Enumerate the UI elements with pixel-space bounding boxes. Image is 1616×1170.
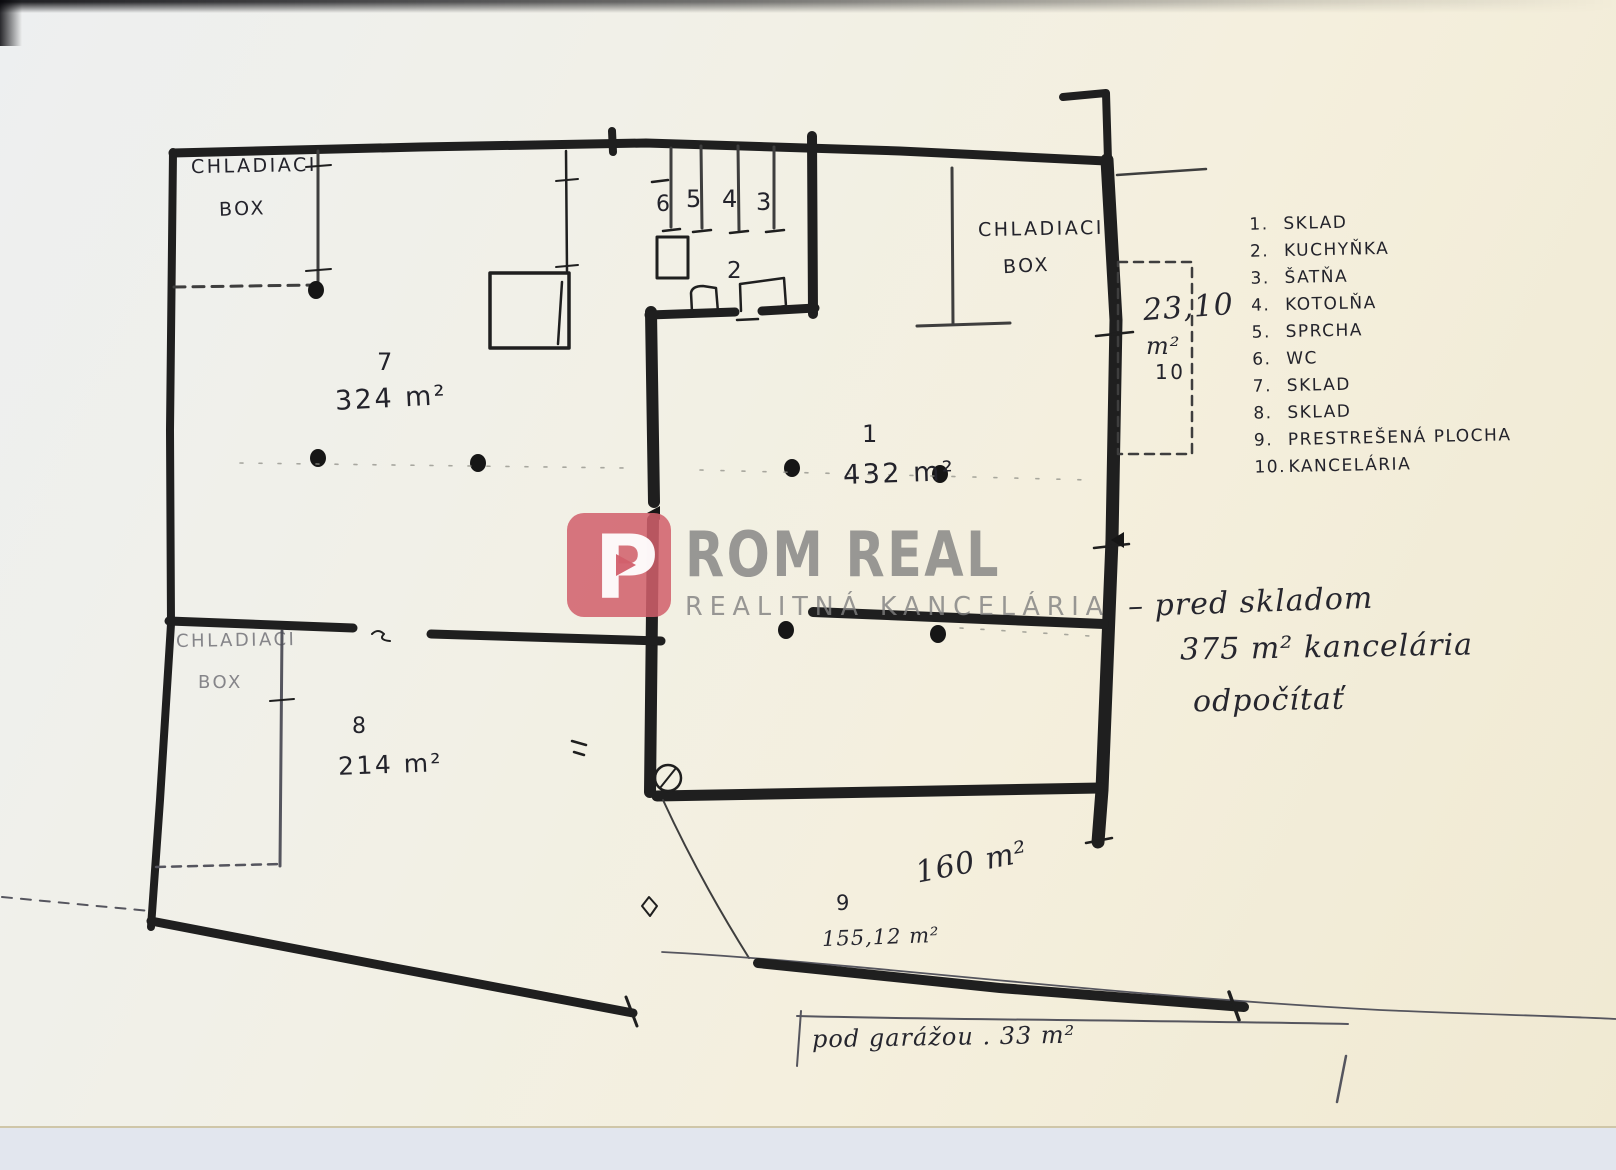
coldbox-tl-label-2: BOX bbox=[219, 197, 267, 221]
room10-unit: m² bbox=[1146, 332, 1180, 360]
coldbox-tl-tick-b bbox=[306, 269, 331, 271]
room1-area: 432 m² bbox=[842, 456, 955, 491]
small-box bbox=[657, 237, 688, 278]
coldbox-tl-label-1: CHLADIACI bbox=[191, 154, 317, 178]
column-dot bbox=[308, 281, 324, 299]
pencil-guide-1 bbox=[240, 463, 625, 468]
stall6-number: 6 bbox=[656, 192, 673, 217]
side-note-line3: odpočítať bbox=[1193, 682, 1346, 720]
wall-interior-left-a bbox=[169, 621, 353, 628]
pencil-guide-3 bbox=[960, 628, 1090, 636]
legend-num: 8. bbox=[1253, 403, 1287, 424]
coldbox-tl-bottom-dashed bbox=[174, 285, 318, 287]
stall-tick-4 bbox=[766, 230, 784, 232]
legend-row: 9.PRESTREŠENÁ PLOCHA bbox=[1254, 425, 1512, 450]
wall-top-stub bbox=[612, 131, 613, 152]
photo-top-edge bbox=[0, 0, 1616, 13]
legend-num: 3. bbox=[1250, 268, 1284, 289]
room8-area: 214 m² bbox=[338, 748, 444, 781]
legend-label: SPRCHA bbox=[1285, 320, 1363, 342]
wall-top-right-bracket bbox=[1063, 93, 1108, 160]
wall-center-upper bbox=[651, 312, 654, 502]
room8-number: 8 bbox=[352, 714, 369, 739]
small-scribble bbox=[572, 741, 586, 755]
photo-bottom-backdrop bbox=[0, 1126, 1616, 1170]
room-legend: 1.SKLAD 2.KUCHYŇKA 3.ŠATŇA 4.KOTOLŇA 5.S… bbox=[1249, 209, 1512, 484]
stall-tick-2 bbox=[693, 230, 711, 232]
fixture-rect-mark bbox=[558, 282, 562, 344]
fixture-rect bbox=[490, 273, 569, 348]
legend-num: 10. bbox=[1254, 457, 1288, 478]
wall-stalls-right bbox=[812, 136, 813, 314]
room10-number: 10 bbox=[1155, 360, 1185, 384]
legend-label: KANCELÁRIA bbox=[1288, 454, 1411, 477]
room7-area: 324 m² bbox=[334, 380, 448, 417]
coldbox-bl-border bbox=[280, 631, 282, 866]
legend-label: WC bbox=[1286, 348, 1318, 369]
coldbox-bl-label-1: CHLADIACI bbox=[176, 629, 297, 652]
side-note-line2: 375 m² kancelária bbox=[1180, 627, 1474, 667]
column-dot bbox=[778, 621, 794, 639]
dimension-line bbox=[566, 151, 567, 271]
watermark-text: ROM REAL REALITNÁ KANCELÁRIA bbox=[685, 512, 1119, 622]
stall-top-dash bbox=[652, 180, 668, 182]
site-line-long bbox=[662, 952, 1616, 1019]
diamond-mark bbox=[642, 897, 657, 916]
wall-interior-left-b bbox=[431, 634, 661, 641]
coldbox-right-label-2: BOX bbox=[1002, 254, 1050, 278]
legend-num: 6. bbox=[1252, 349, 1286, 370]
legend-num: 2. bbox=[1250, 241, 1284, 262]
legend-label: ŠATŇA bbox=[1284, 267, 1348, 288]
stall5-number: 5 bbox=[686, 185, 704, 213]
stall-tick-3 bbox=[730, 231, 748, 233]
site-line-left-dashed bbox=[2, 897, 150, 911]
brand-name: ROM REAL bbox=[685, 524, 1041, 586]
legend-row: 5.SPRCHA bbox=[1251, 317, 1509, 342]
legend-label: PRESTREŠENÁ PLOCHA bbox=[1288, 425, 1512, 450]
coldbox-bl-label-2: BOX bbox=[198, 672, 243, 693]
wall-room1-bottom bbox=[657, 788, 1100, 796]
note-tick-right bbox=[1337, 1056, 1346, 1102]
legend-row: 7.SKLAD bbox=[1253, 371, 1511, 396]
legend-row: 2.KUCHYŇKA bbox=[1250, 236, 1508, 261]
note-tick-left bbox=[797, 1011, 801, 1066]
watermark: P ROM REAL REALITNÁ KANCELÁRIA bbox=[566, 512, 1119, 622]
legend-row: 8.SKLAD bbox=[1253, 398, 1511, 423]
legend-row: 1.SKLAD bbox=[1249, 209, 1507, 234]
legend-num: 9. bbox=[1254, 430, 1288, 451]
brand-subtitle: REALITNÁ KANCELÁRIA bbox=[685, 592, 1110, 622]
coldbox-right-divider bbox=[952, 168, 953, 324]
room1-number: 1 bbox=[862, 420, 880, 448]
room10-area: 23,10 bbox=[1142, 287, 1235, 328]
photo-corner-shadow bbox=[0, 0, 22, 46]
legend-label: SKLAD bbox=[1287, 402, 1351, 423]
fixture-toilet-1 bbox=[691, 286, 718, 312]
legend-label: SKLAD bbox=[1283, 213, 1347, 234]
wall-diagonal-right bbox=[758, 963, 1244, 1007]
legend-row: 6.WC bbox=[1252, 344, 1510, 369]
door-squiggle bbox=[372, 631, 390, 641]
wall-right bbox=[1098, 160, 1116, 842]
column-dot bbox=[784, 459, 800, 477]
coldbox-right-base bbox=[917, 323, 1010, 326]
legend-num: 7. bbox=[1253, 376, 1287, 397]
topright-thin-line bbox=[1117, 169, 1206, 175]
dimension-tick-b bbox=[556, 265, 578, 267]
column-dot bbox=[930, 625, 946, 643]
stall4-number: 4 bbox=[722, 185, 740, 213]
room2-threshold-dash bbox=[737, 319, 758, 320]
floor-plan-photo: CHLADIACI BOX 7 324 m² 6 5 4 3 2 1 432 m… bbox=[0, 0, 1616, 1170]
stall3-number: 3 bbox=[756, 188, 774, 216]
legend-num: 4. bbox=[1251, 295, 1285, 316]
outdoor-number-label: 9 bbox=[836, 891, 852, 915]
door-arc bbox=[663, 800, 749, 958]
door-circle-slash bbox=[660, 768, 676, 788]
legend-row: 3.ŠATŇA bbox=[1250, 263, 1508, 288]
column-dot bbox=[470, 454, 486, 472]
legend-row: 10.KANCELÁRIA bbox=[1254, 452, 1512, 477]
legend-num: 1. bbox=[1249, 214, 1283, 235]
legend-label: KOTOLŇA bbox=[1285, 293, 1377, 315]
room2-number: 2 bbox=[727, 258, 744, 284]
fixture-toilet-2 bbox=[740, 278, 786, 311]
outdoor-area2-label: 155,12 m² bbox=[822, 923, 940, 951]
coldbox-right-label-1: CHLADIACI bbox=[978, 217, 1104, 241]
legend-label: SKLAD bbox=[1287, 375, 1351, 396]
coldbox-bl-tick bbox=[270, 699, 294, 701]
legend-num: 5. bbox=[1251, 322, 1285, 343]
promreal-logo-icon: P bbox=[566, 512, 672, 618]
dimension-tick-a bbox=[556, 179, 578, 181]
wall-left bbox=[151, 152, 173, 927]
coldbox-bl-bottom-dashed bbox=[156, 864, 282, 867]
legend-row: 4.KOTOLŇA bbox=[1251, 290, 1509, 315]
room7-number: 7 bbox=[377, 348, 395, 376]
legend-label: KUCHYŇKA bbox=[1284, 239, 1390, 261]
wall-diagonal-left bbox=[151, 921, 633, 1013]
stall-tick-1 bbox=[663, 229, 680, 231]
bottom-note: pod garážou . 33 m² bbox=[812, 1021, 1076, 1054]
